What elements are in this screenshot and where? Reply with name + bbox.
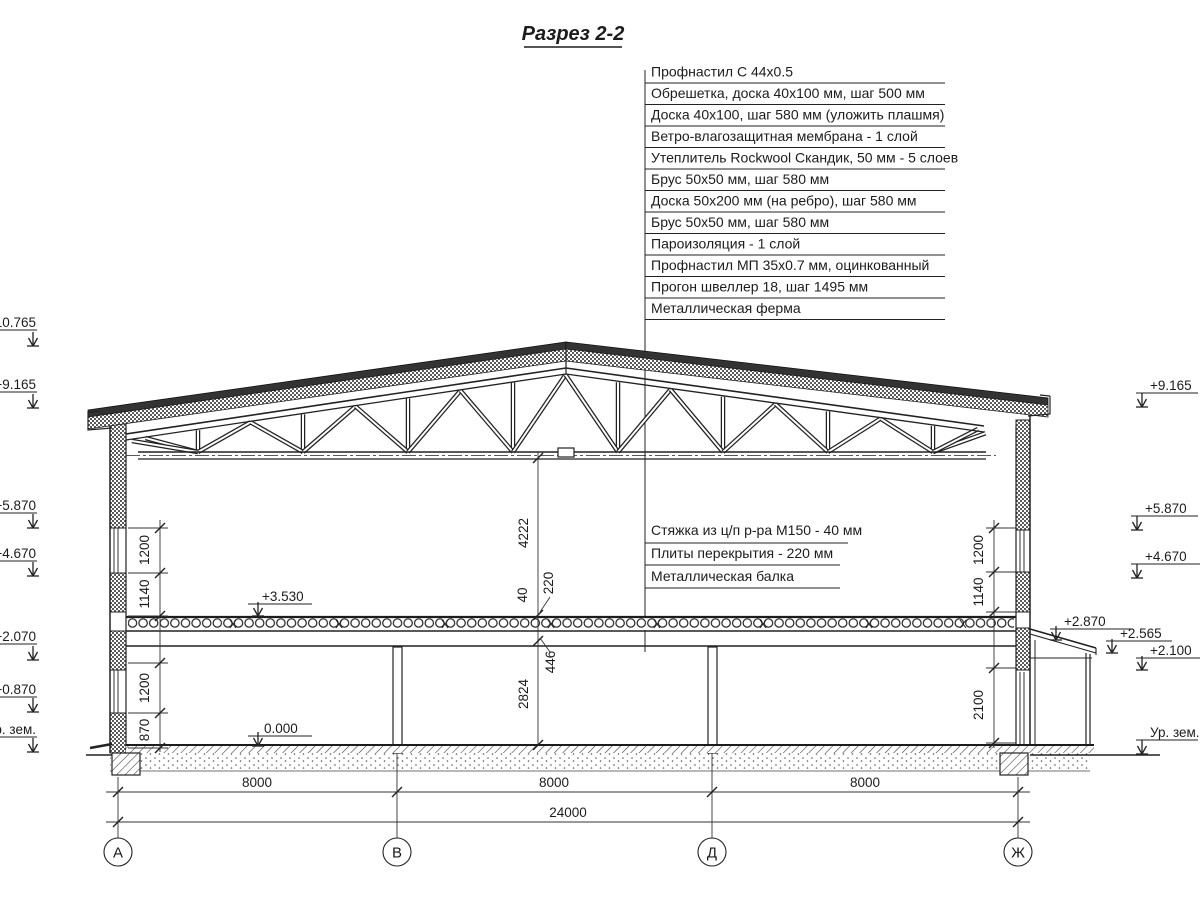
ground-level-label: Ур. зем. bbox=[0, 722, 36, 737]
truss-web-member bbox=[251, 422, 304, 452]
dim-label: 870 bbox=[137, 719, 152, 742]
roof-insulation bbox=[88, 349, 566, 429]
foundation-left bbox=[112, 753, 140, 775]
drawing-title: Разрез 2-2 bbox=[522, 23, 625, 47]
truss-web-member bbox=[356, 406, 409, 452]
floor-callout-list: Стяжка из ц/п р-ра М150 - 40 мм Плиты пе… bbox=[645, 522, 862, 588]
elevation-marks-right: +9.165 +5.870 +4.670 +2.870 +2.565 +2.10… bbox=[1050, 378, 1200, 754]
dim-label: 220 bbox=[541, 572, 556, 595]
annex-roof bbox=[1030, 629, 1096, 648]
elevation-label: +5.870 bbox=[1145, 501, 1187, 516]
truss-web-member bbox=[671, 390, 724, 452]
interior-level-marks: +3.530 0.000 bbox=[248, 589, 312, 746]
roof-layer-callout: Доска 40х100, шаг 580 мм (уложить плашмя… bbox=[651, 107, 944, 123]
axis-label: Д bbox=[707, 845, 717, 862]
column-axis-D bbox=[708, 647, 717, 753]
span-dim: 8000 bbox=[850, 775, 880, 790]
span-dim: 8000 bbox=[539, 775, 569, 790]
dim-label: 1140 bbox=[137, 579, 152, 608]
truss-web-member bbox=[513, 375, 566, 452]
elevation-label: +2.070 bbox=[0, 629, 36, 644]
dim-label: 2100 bbox=[971, 690, 986, 720]
left-wall bbox=[110, 420, 126, 753]
truss-web-member bbox=[303, 406, 356, 452]
roof bbox=[88, 342, 1050, 430]
level-label: 0.000 bbox=[264, 721, 298, 736]
elevation-label: +5.870 bbox=[0, 498, 36, 513]
elevation-label: +4.670 bbox=[1145, 549, 1187, 564]
dim-label: 2824 bbox=[516, 678, 531, 709]
truss-web-member bbox=[618, 390, 671, 452]
roof-layer-callout: Брус 50х50 мм, шаг 580 мм bbox=[651, 214, 829, 230]
dim-label: 4222 bbox=[516, 518, 531, 548]
axis-label: А bbox=[113, 845, 123, 862]
truss-web-member bbox=[723, 404, 776, 452]
span-dim: 8000 bbox=[242, 775, 272, 790]
roof-layer-callout: Пароизоляция - 1 слой bbox=[651, 236, 800, 252]
truss-connection-detail bbox=[558, 448, 574, 457]
roof-layer-callout: Профнастил С 44х0.5 bbox=[651, 64, 793, 80]
dim-label: 1200 bbox=[137, 535, 152, 565]
column-axis-B bbox=[393, 647, 402, 753]
axis-label: Ж bbox=[1011, 845, 1025, 862]
roof-layer-callout: Прогон швеллер 18, шаг 1495 мм bbox=[651, 279, 868, 295]
dimension-chain-center: 4222 40 220 446 2824 bbox=[515, 452, 558, 750]
elevation-label: +2.565 bbox=[1120, 626, 1162, 641]
floor-layer-callout: Плиты перекрытия - 220 мм bbox=[651, 545, 833, 561]
roof-layer-callout: Доска 50х200 мм (на ребро), шаг 580 мм bbox=[651, 193, 917, 209]
section-drawing: Разрез 2-2 Профнастил С 44х0.5 Обрешетка… bbox=[0, 0, 1200, 900]
axis-bubbles: А В Д Ж bbox=[104, 838, 1032, 866]
level-label: +3.530 bbox=[262, 589, 304, 604]
floor-layer-callout: Стяжка из ц/п р-ра М150 - 40 мм bbox=[651, 522, 862, 538]
ground-level-label: Ур. зем. bbox=[1150, 725, 1200, 740]
truss-web-member bbox=[828, 419, 881, 452]
elevation-label: +2.100 bbox=[1150, 643, 1192, 658]
elevation-label: +0.870 bbox=[0, 682, 36, 697]
floor-layer-callout: Металлическая балка bbox=[651, 568, 794, 584]
dim-label: 446 bbox=[543, 651, 558, 674]
elevation-label: +9.165 bbox=[0, 377, 36, 392]
roof-layer-callout: Утеплитель Rockwool Скандик, 50 мм - 5 с… bbox=[651, 150, 958, 166]
axis-label: В bbox=[392, 845, 402, 862]
dimension-chain-right: 1200 1140 2100 bbox=[971, 520, 1016, 748]
dim-label: 1200 bbox=[137, 673, 152, 703]
dim-label: 1140 bbox=[971, 577, 986, 606]
elevation-label: +2.870 bbox=[1064, 614, 1106, 629]
truss-web-member bbox=[566, 375, 619, 452]
truss-web-member bbox=[408, 391, 461, 452]
page-title: Разрез 2-2 bbox=[522, 23, 625, 45]
roof-layer-callout: Металлическая ферма bbox=[651, 300, 801, 316]
dim-label: 40 bbox=[515, 587, 530, 602]
elevation-label: +9.165 bbox=[1150, 378, 1192, 393]
roof-layer-callout: Обрешетка, доска 40х100 мм, шаг 500 мм bbox=[651, 85, 925, 101]
truss-web-member bbox=[776, 404, 829, 452]
foundation-right bbox=[1000, 753, 1028, 775]
elevation-marks-left: +10.765 +9.165 +5.870 +4.670 +2.070 +0.8… bbox=[0, 315, 39, 752]
dim-label: 1200 bbox=[971, 535, 986, 565]
annex bbox=[1030, 629, 1096, 745]
drawing-sheet: Разрез 2-2 Профнастил С 44х0.5 Обрешетка… bbox=[0, 0, 1200, 900]
truss-web-member bbox=[198, 422, 251, 452]
roof-layer-callout: Брус 50х50 мм, шаг 580 мм bbox=[651, 171, 829, 187]
roof-layer-callout: Ветро-влагозащитная мембрана - 1 слой bbox=[651, 128, 918, 144]
roof-layer-callout: Профнастил МП 35х0.7 мм, оцинкованный bbox=[651, 257, 929, 273]
elevation-label: +10.765 bbox=[0, 315, 36, 330]
ground-floor bbox=[86, 744, 1160, 775]
dimension-chain-left: 1200 1140 1200 870 bbox=[128, 520, 168, 753]
total-dim: 24000 bbox=[549, 805, 587, 820]
truss-web-member bbox=[461, 391, 514, 452]
floor-slab bbox=[126, 617, 1016, 646]
elevation-label: +4.670 bbox=[0, 546, 36, 561]
apron-flashing bbox=[90, 744, 112, 748]
right-wall bbox=[1016, 415, 1030, 753]
